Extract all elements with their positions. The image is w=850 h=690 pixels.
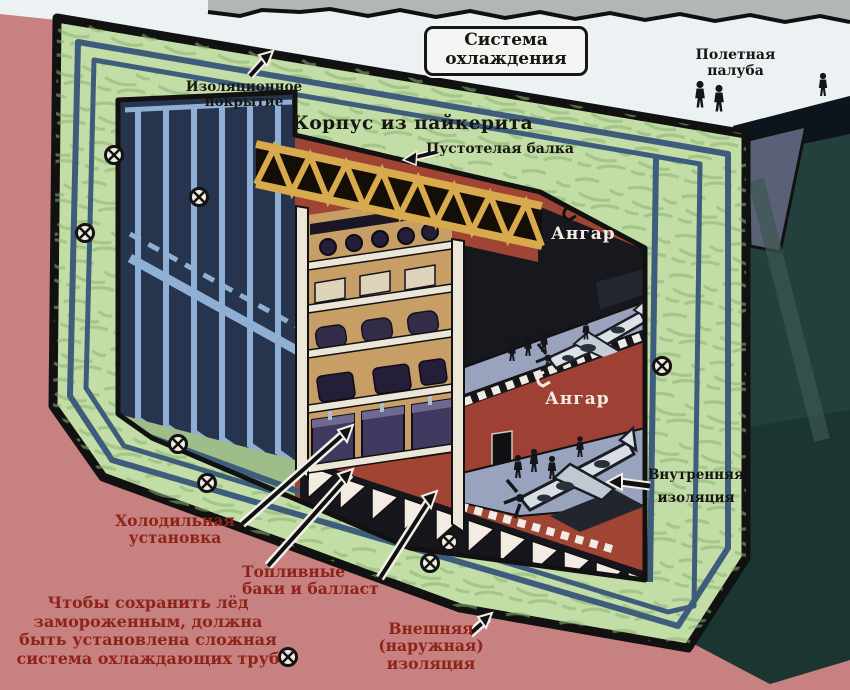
fuel-tanks-label: Топливные баки и балласт <box>242 563 379 598</box>
insulation-coating-label: Изоляционное покрытие <box>170 80 318 110</box>
valve-wheel-icon <box>191 189 208 206</box>
label-line: Ангар <box>551 224 616 244</box>
label-line: Изоляционное <box>170 80 318 95</box>
flight-deck-label: Полетная палуба <box>678 48 793 79</box>
hangar-upper-label: Ангар <box>551 225 616 244</box>
label-line: установка <box>105 529 245 546</box>
illustration-page: Система охлаждения Полетная палуба Изоля… <box>0 0 850 690</box>
label-line: Внутренняя <box>646 464 746 487</box>
valve-wheel-icon <box>422 555 439 572</box>
label-line: изоляция <box>646 487 746 510</box>
valve-wheel-icon <box>441 534 458 551</box>
label-line: Холодильная <box>105 512 245 529</box>
valve-wheel-icon <box>199 475 216 492</box>
cooling-system-label: Система охлаждения <box>424 26 588 76</box>
label-line: охлаждения <box>437 50 575 69</box>
note-line: быть установлена сложная <box>8 631 288 650</box>
label-line: Корпус из пайкерита <box>292 113 533 134</box>
cooling-note: Чтобы сохранить лёд замороженным, должна… <box>8 594 288 669</box>
valve-wheel-icon <box>654 358 671 375</box>
label-line: (наружная) <box>366 637 496 654</box>
label-line: Система <box>437 31 575 50</box>
note-line: Чтобы сохранить лёд <box>8 594 288 613</box>
pykrete-hull-label: Корпус из пайкерита <box>292 114 533 135</box>
label-line: Ангар <box>545 389 610 409</box>
external-insulation-label: Внешняя (наружная) изоляция <box>366 620 496 672</box>
refrigeration-unit-label: Холодильная установка <box>105 512 245 547</box>
valve-wheel-icon <box>106 147 123 164</box>
hollow-beam-label: Пустотелая балка <box>426 142 574 158</box>
label-line: Пустотелая балка <box>426 141 574 157</box>
valve-wheel-icon <box>170 436 187 453</box>
illustration-canvas <box>0 0 850 690</box>
label-line: палуба <box>678 64 793 80</box>
label-line: Топливные <box>242 563 379 580</box>
label-line: покрытие <box>170 95 318 110</box>
note-line: замороженным, должна <box>8 613 288 632</box>
label-line: Внешняя <box>366 620 496 637</box>
note-line: система охлаждающих труб <box>8 650 288 669</box>
label-line: изоляция <box>366 655 496 672</box>
valve-wheel-icon <box>77 225 94 242</box>
internal-insulation-label: Внутренняя изоляция <box>646 464 746 510</box>
hangar-lower-label: Ангар <box>545 390 610 409</box>
label-line: Полетная <box>678 48 793 64</box>
